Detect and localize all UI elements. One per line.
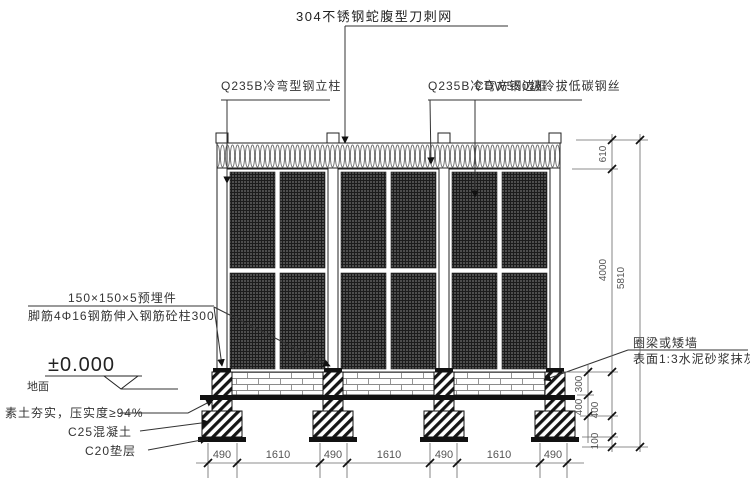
- right-dimensions: 300 400 610 4000 400 100 5810: [562, 134, 648, 452]
- steel-wire-label: CDW550级冷拔低碳钢丝: [475, 78, 621, 93]
- ground-label: 地面: [27, 380, 49, 393]
- dim-bottom-5: 1610: [487, 449, 511, 461]
- level-symbol: ±0.000 地面: [27, 354, 178, 393]
- dim-razor-height: 610: [598, 145, 609, 162]
- dim-total-height: 5810: [616, 266, 627, 289]
- dim-bottom-1: 1610: [266, 449, 290, 461]
- plaster-label: 表面1:3水泥砂浆抹灰: [633, 351, 750, 366]
- mesh-panels: [227, 169, 550, 372]
- fence-body: [198, 133, 579, 442]
- dim-cushion-depth: 100: [590, 432, 601, 449]
- dim-bottom-6: 490: [544, 449, 562, 461]
- c25-label: C25混凝土: [68, 424, 132, 439]
- dim-bottom-2: 490: [324, 449, 342, 461]
- razor-wire-band: [217, 143, 560, 168]
- fence-elevation-svg: ±0.000 地面 304不锈钢蛇腹型刀刺网 Q235B冷弯型钢立柱 Q235B…: [0, 0, 750, 496]
- ring-beam-label: 圈梁或矮墙: [633, 335, 698, 350]
- embed-plate-label: 150×150×5预埋件: [68, 291, 177, 305]
- dim-wall-height: 300: [574, 375, 585, 392]
- right-annotations: 圈梁或矮墙 表面1:3水泥砂浆抹灰: [544, 335, 750, 380]
- steel-post-label: Q235B冷弯型钢立柱: [221, 78, 341, 93]
- dim-bottom-3: 1610: [377, 449, 401, 461]
- c20-label: C20垫层: [85, 443, 136, 458]
- razor-wire-label: 304不锈钢蛇腹型刀刺网: [296, 9, 453, 24]
- ground-beam: [200, 395, 575, 400]
- anchor-bar-label: 脚筋4Φ16钢筋伸入钢筋砼柱300: [28, 308, 215, 323]
- construction-drawing: ±0.000 地面 304不锈钢蛇腹型刀刺网 Q235B冷弯型钢立柱 Q235B…: [0, 0, 750, 496]
- dim-bottom-0: 490: [213, 449, 231, 461]
- dim-bottom-4: 490: [435, 449, 453, 461]
- brick-wall: [217, 372, 560, 395]
- dim-depth-a: 400: [574, 398, 585, 415]
- level-value: ±0.000: [48, 354, 115, 376]
- dim-depth-b: 400: [590, 401, 601, 418]
- bottom-dimensions: 490 1610 490 1610 490 1610 490: [196, 443, 584, 478]
- dim-panel-height: 4000: [598, 258, 609, 281]
